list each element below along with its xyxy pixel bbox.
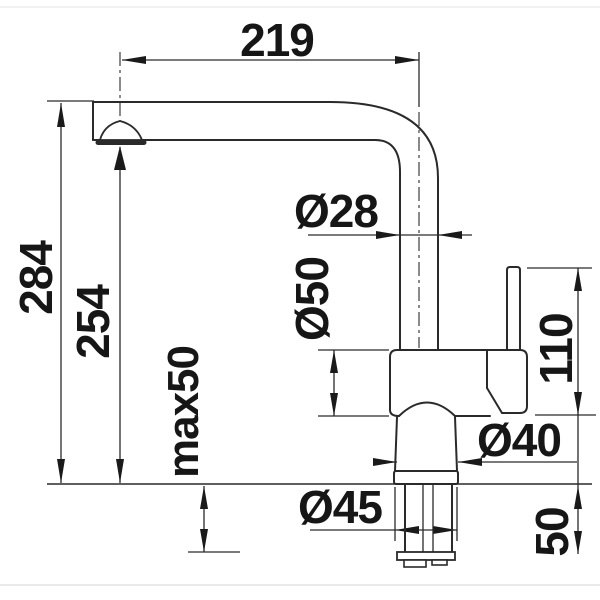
dim-label-pipe-diameter: Ø28 — [294, 188, 378, 234]
dim-label-spout-reach: 219 — [240, 17, 314, 63]
hose-end-left — [404, 560, 426, 567]
technical-drawing-page: 219 284 254 max50 Ø28 Ø50 110 Ø40 Ø45 50 — [0, 0, 600, 600]
mounting-shank — [397, 484, 455, 567]
spout-inner — [93, 140, 400, 349]
dim-label-body-diameter: Ø50 — [289, 257, 335, 341]
dim-label-max-mount-thickness: max50 — [162, 346, 206, 478]
dim-label-lever-top-height: 110 — [533, 313, 579, 384]
mounting-flange — [394, 471, 458, 484]
base-bell-right — [455, 417, 457, 471]
dim-label-base-diameter: Ø40 — [477, 417, 561, 463]
mounting-nut — [397, 552, 455, 560]
dim-label-flange-diameter: Ø45 — [298, 484, 382, 530]
dim-label-height-outlet: 254 — [70, 285, 116, 359]
hose-end-right — [432, 560, 447, 565]
dim-label-under-counter-depth: 50 — [529, 507, 575, 556]
dim-label-height-total: 284 — [13, 241, 59, 315]
base-bell-left — [395, 417, 397, 471]
lever-handle — [507, 267, 520, 350]
spray-head — [100, 121, 142, 140]
